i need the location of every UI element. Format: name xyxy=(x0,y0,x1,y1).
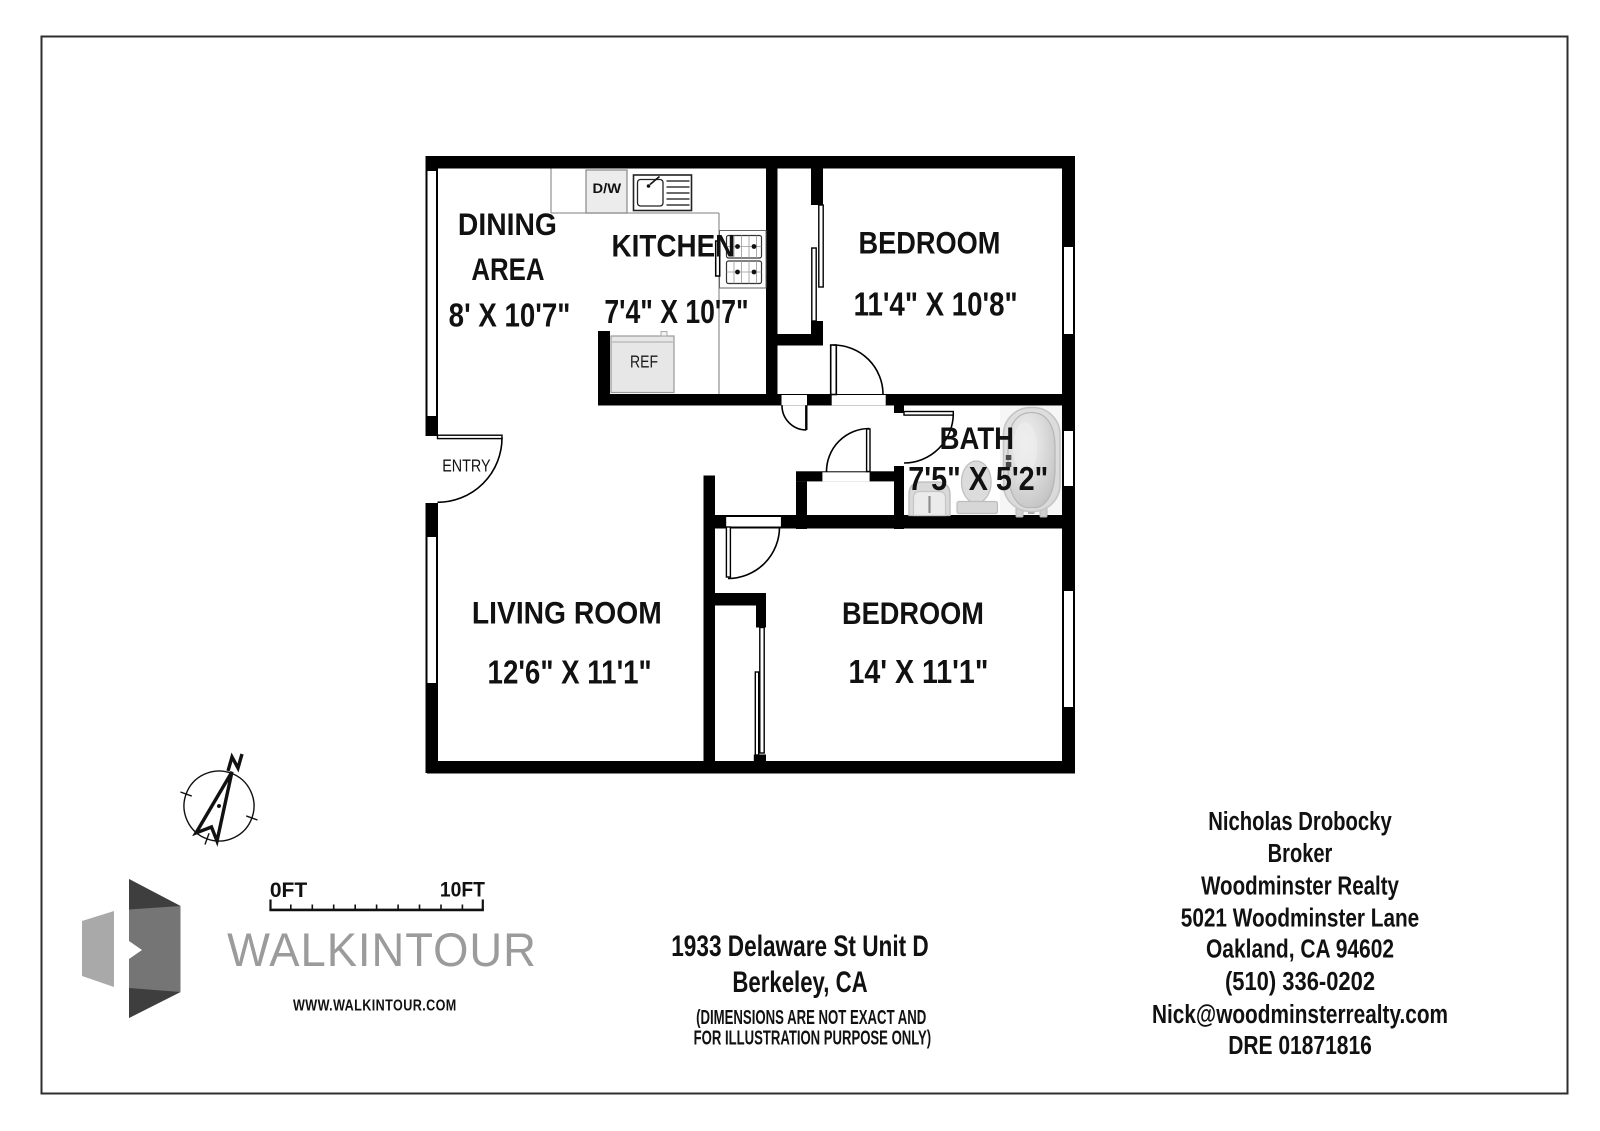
svg-text:Broker: Broker xyxy=(1268,839,1333,868)
svg-text:7'5" X 5'2": 7'5" X 5'2" xyxy=(908,460,1048,498)
svg-text:12'6" X 11'1": 12'6" X 11'1" xyxy=(488,653,652,691)
svg-text:14' X 11'1": 14' X 11'1" xyxy=(848,653,988,691)
svg-text:Berkeley, CA: Berkeley, CA xyxy=(732,965,867,999)
svg-text:WWW.WALKINTOUR.COM: WWW.WALKINTOUR.COM xyxy=(293,996,457,1014)
svg-text:8' X 10'7": 8' X 10'7" xyxy=(449,296,571,334)
svg-text:FOR ILLUSTRATION PURPOSE ONLY): FOR ILLUSTRATION PURPOSE ONLY) xyxy=(694,1027,932,1049)
svg-text:Nicholas Drobocky: Nicholas Drobocky xyxy=(1208,806,1391,835)
svg-text:ENTRY: ENTRY xyxy=(442,457,491,476)
svg-text:BEDROOM: BEDROOM xyxy=(842,596,984,631)
svg-text:7'4" X 10'7": 7'4" X 10'7" xyxy=(604,294,748,331)
svg-text:REF: REF xyxy=(630,353,658,372)
svg-text:DRE 01871816: DRE 01871816 xyxy=(1228,1032,1372,1061)
svg-text:11'4" X 10'8": 11'4" X 10'8" xyxy=(854,285,1018,323)
svg-text:DINING: DINING xyxy=(458,208,557,243)
svg-text:D/W: D/W xyxy=(593,181,622,197)
svg-text:1933 Delaware St Unit D: 1933 Delaware St Unit D xyxy=(671,929,929,963)
svg-text:0FT: 0FT xyxy=(270,879,308,902)
svg-text:AREA: AREA xyxy=(471,253,544,288)
svg-text:BEDROOM: BEDROOM xyxy=(858,226,1000,261)
svg-text:Oakland, CA 94602: Oakland, CA 94602 xyxy=(1206,935,1394,964)
svg-text:WALKINTOUR: WALKINTOUR xyxy=(227,923,537,976)
svg-text:Woodminster Realty: Woodminster Realty xyxy=(1201,871,1399,900)
svg-text:BATH: BATH xyxy=(940,421,1014,456)
svg-text:LIVING ROOM: LIVING ROOM xyxy=(472,596,662,631)
svg-text:(510) 336-0202: (510) 336-0202 xyxy=(1225,967,1375,996)
svg-text:10FT: 10FT xyxy=(440,879,486,902)
svg-text:KITCHEN: KITCHEN xyxy=(612,229,736,264)
svg-text:Nick@woodminsterrealty.com: Nick@woodminsterrealty.com xyxy=(1152,1000,1448,1029)
svg-text:5021 Woodminster Lane: 5021 Woodminster Lane xyxy=(1181,903,1419,932)
svg-text:(DIMENSIONS ARE NOT EXACT AND: (DIMENSIONS ARE NOT EXACT AND xyxy=(696,1006,926,1028)
